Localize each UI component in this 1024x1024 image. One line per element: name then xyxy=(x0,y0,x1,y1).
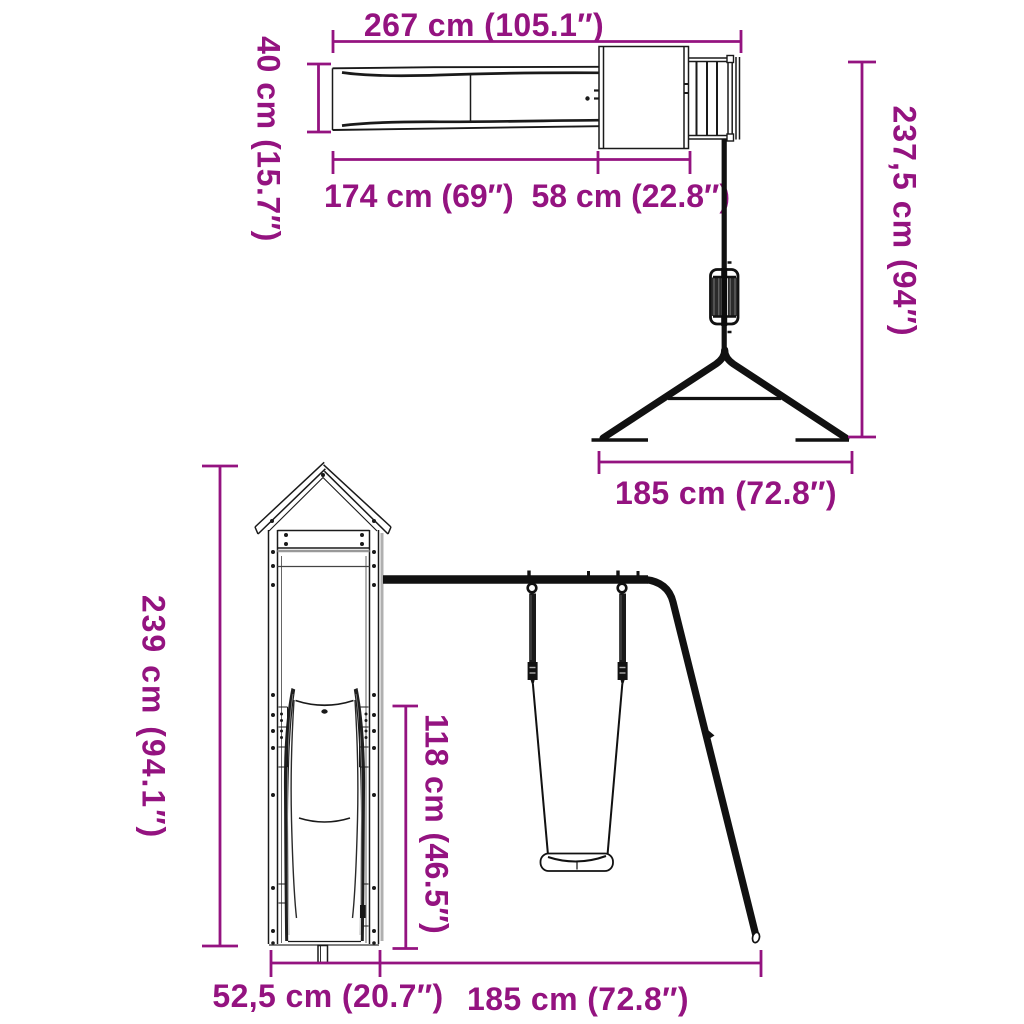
svg-text:239 cm (94.1″): 239 cm (94.1″) xyxy=(136,595,172,839)
svg-text:185 cm (72.8″): 185 cm (72.8″) xyxy=(467,981,689,1017)
svg-text:40 cm (15.7″): 40 cm (15.7″) xyxy=(251,36,287,242)
svg-text:52,5 cm (20.7″): 52,5 cm (20.7″) xyxy=(212,978,443,1014)
svg-text:237,5 cm (94″): 237,5 cm (94″) xyxy=(887,105,923,336)
svg-text:267 cm (105.1″): 267 cm (105.1″) xyxy=(364,7,604,43)
svg-text:174 cm (69″) 58 cm (22.8″): 174 cm (69″) 58 cm (22.8″) xyxy=(324,178,730,214)
svg-text:185 cm (72.8″): 185 cm (72.8″) xyxy=(615,475,837,511)
svg-text:118 cm (46.5″): 118 cm (46.5″) xyxy=(419,714,455,934)
